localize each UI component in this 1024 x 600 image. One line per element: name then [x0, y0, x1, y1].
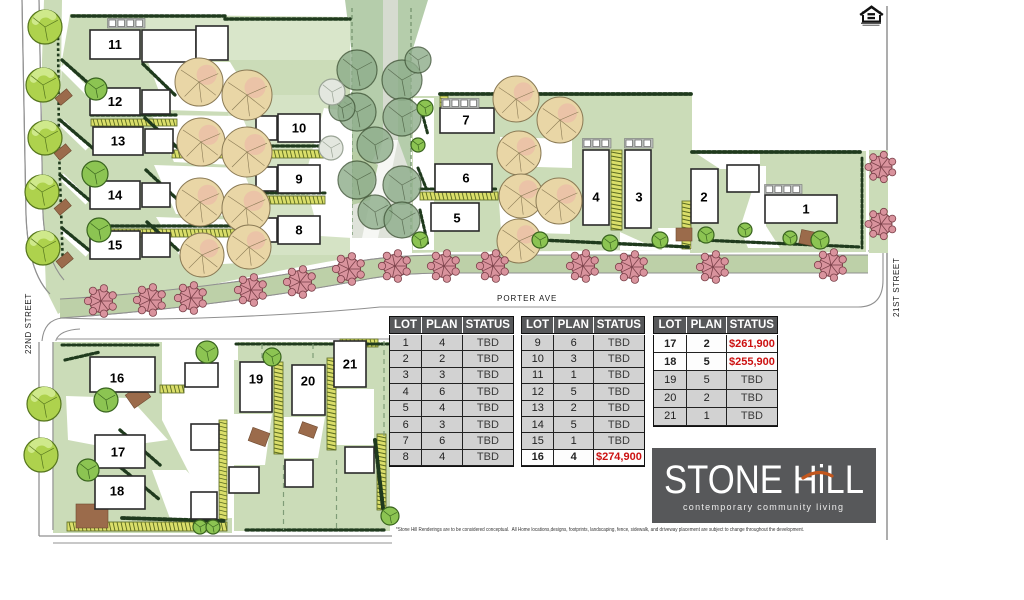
svg-text:19: 19 — [249, 372, 263, 387]
svg-text:15: 15 — [108, 238, 122, 253]
svg-text:STONE HiLL: STONE HiLL — [664, 458, 864, 502]
svg-text:1: 1 — [802, 202, 809, 217]
svg-text:21ST STREET: 21ST STREET — [892, 258, 901, 317]
svg-text:contemporary community living: contemporary community living — [683, 502, 845, 512]
svg-text:14: 14 — [108, 188, 123, 203]
svg-text:12: 12 — [108, 94, 122, 109]
svg-text:8: 8 — [295, 223, 302, 238]
svg-text:17: 17 — [111, 445, 125, 460]
svg-text:4: 4 — [592, 190, 600, 205]
svg-text:5: 5 — [453, 211, 460, 226]
svg-text:22ND STREET: 22ND STREET — [24, 293, 33, 354]
svg-text:18: 18 — [110, 484, 124, 499]
svg-text:10: 10 — [292, 121, 306, 136]
svg-text:3: 3 — [635, 190, 642, 205]
svg-text:13: 13 — [111, 134, 125, 149]
svg-text:11: 11 — [108, 37, 122, 52]
svg-text:PORTER AVE: PORTER AVE — [497, 294, 557, 303]
svg-text:9: 9 — [295, 172, 302, 187]
svg-text:6: 6 — [462, 171, 469, 186]
svg-text:7: 7 — [462, 113, 469, 128]
svg-text:16: 16 — [110, 371, 124, 386]
svg-text:20: 20 — [301, 374, 315, 389]
svg-text:2: 2 — [700, 190, 707, 205]
svg-text:21: 21 — [343, 357, 357, 372]
